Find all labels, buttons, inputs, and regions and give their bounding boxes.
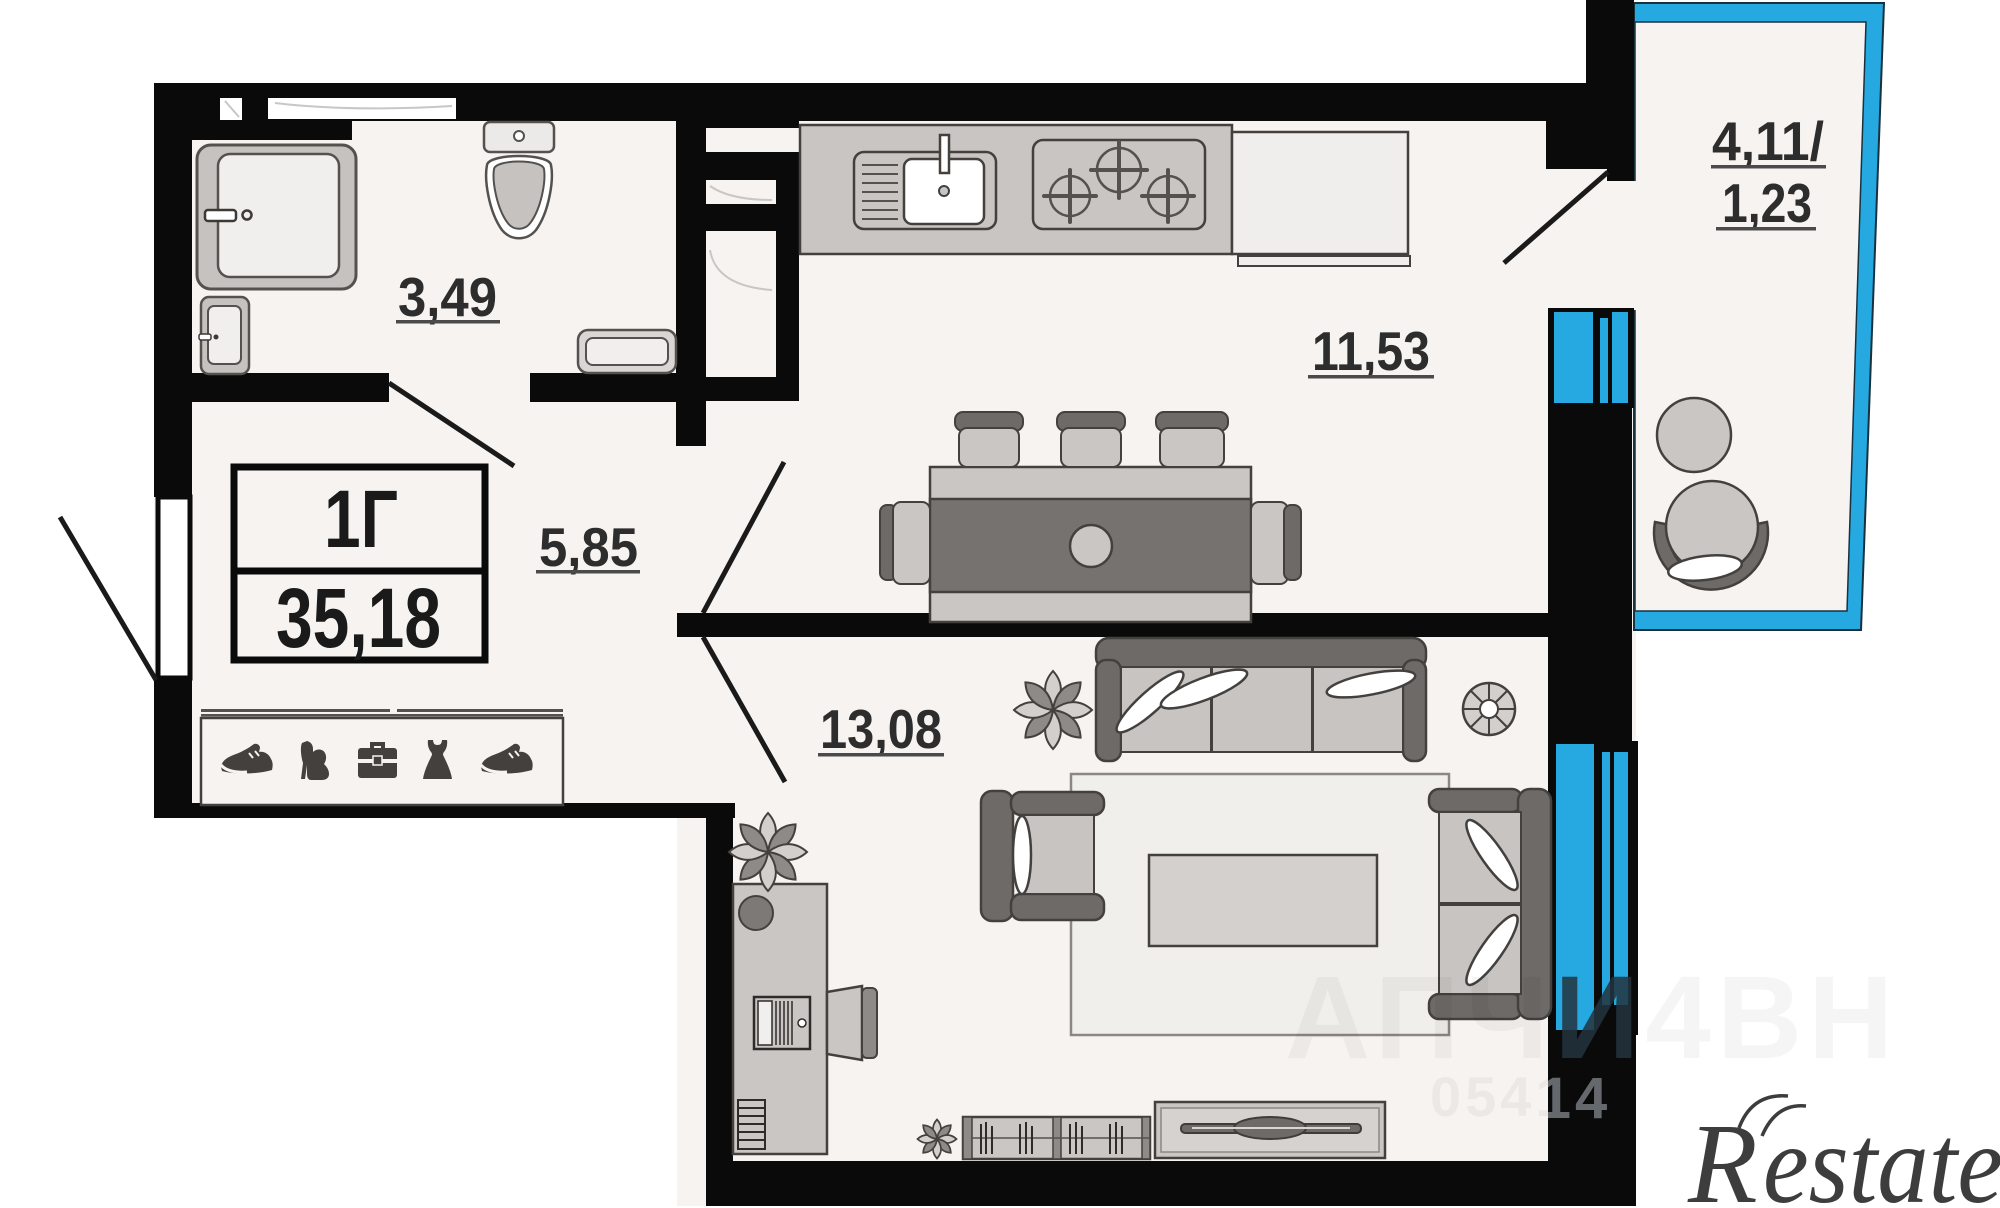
svg-text:4,11/: 4,11/ [1712, 110, 1824, 172]
svg-text:estate: estate [1763, 1103, 2000, 1208]
svg-text:5,85: 5,85 [539, 516, 638, 578]
svg-text:35,18: 35,18 [276, 571, 441, 665]
svg-text:3,49: 3,49 [398, 266, 497, 328]
svg-text:1,23: 1,23 [1722, 172, 1812, 234]
svg-text:11,53: 11,53 [1312, 320, 1430, 382]
svg-text:R: R [1687, 1100, 1758, 1208]
svg-text:1Г: 1Г [324, 474, 398, 565]
svg-text:13,08: 13,08 [820, 698, 942, 760]
